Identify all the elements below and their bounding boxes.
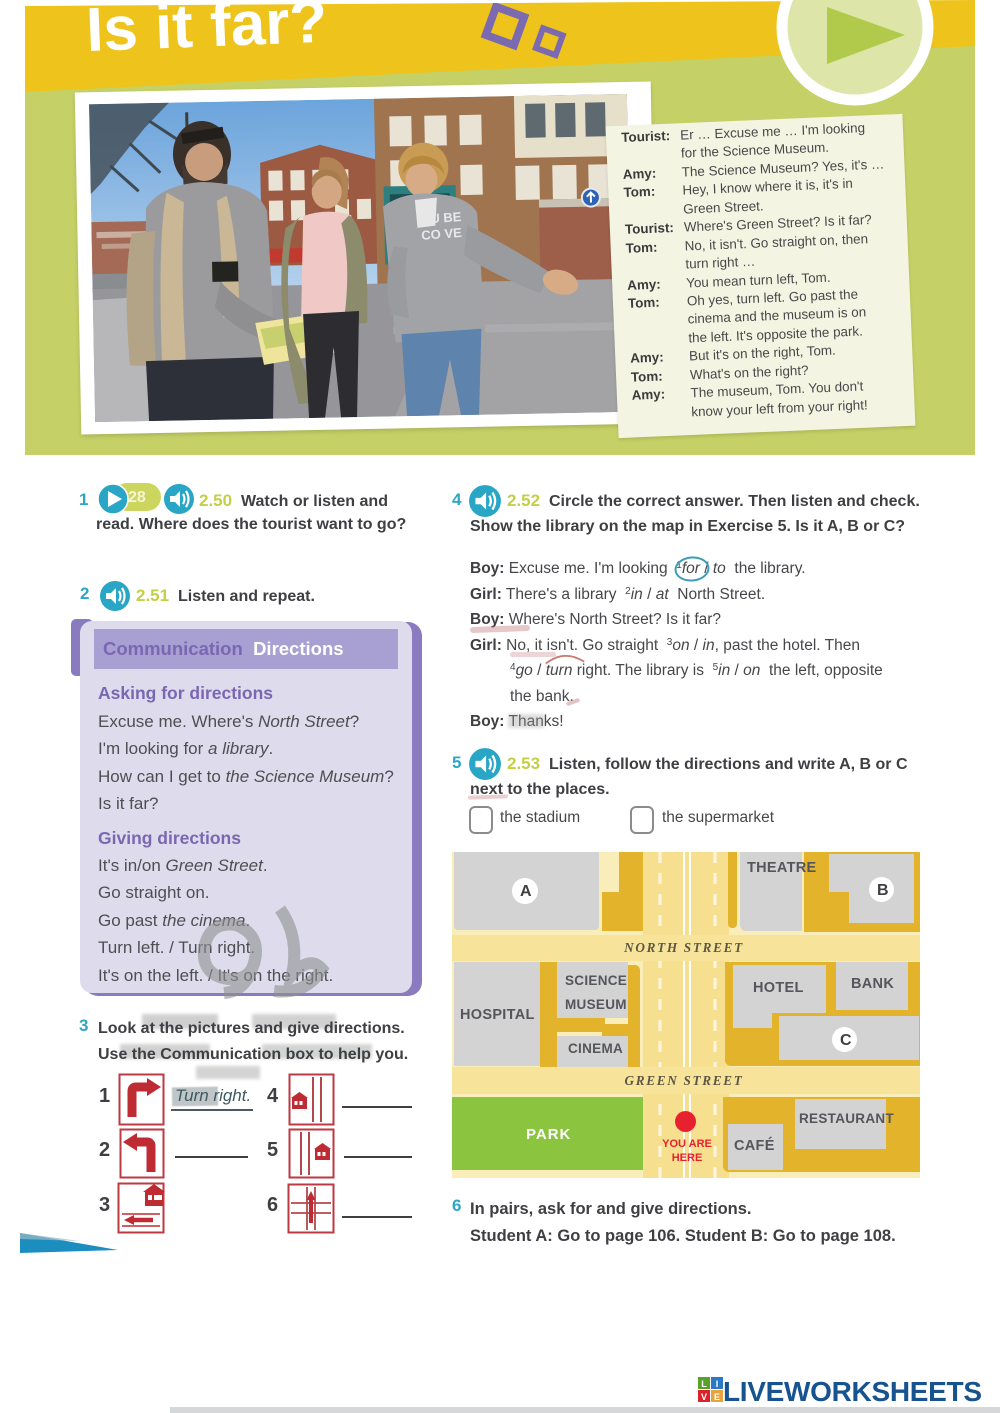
- svg-text:CO VE: CO VE: [421, 225, 463, 243]
- svg-text:E: E: [714, 1392, 720, 1402]
- svg-text:V: V: [701, 1392, 707, 1402]
- svg-text:CU BE: CU BE: [420, 209, 462, 227]
- svg-text:I: I: [716, 1379, 719, 1389]
- svg-text:L: L: [701, 1379, 707, 1389]
